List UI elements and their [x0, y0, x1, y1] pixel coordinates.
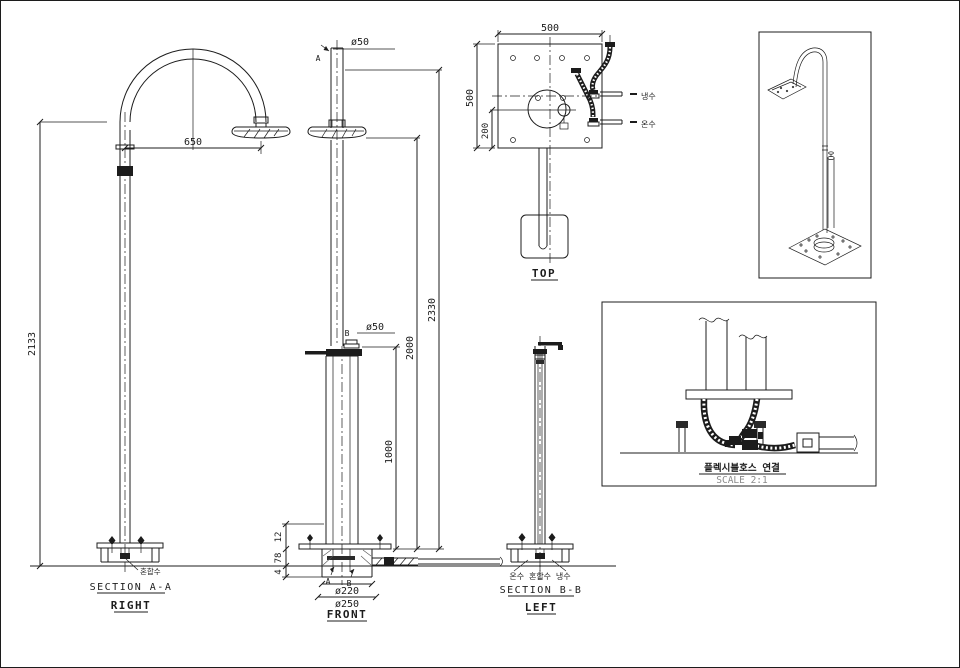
- detail-scale-label: SCALE 2:1: [716, 475, 768, 486]
- marker-a-top: A: [316, 54, 321, 63]
- right-view-label: RIGHT: [111, 599, 152, 612]
- section-a-label: SECTION A-A: [90, 582, 173, 593]
- marker-b-mid: B: [345, 329, 350, 338]
- svg-text:12: 12: [274, 532, 284, 543]
- section-b-label: SECTION B-B: [500, 585, 583, 596]
- detail-title: 플렉시블호스 연결: [704, 462, 780, 474]
- front-view-label: FRONT: [327, 608, 368, 621]
- svg-text:500: 500: [465, 89, 476, 107]
- drawing-sheet: 650 2133 혼합수 SECTION A-A RIGHT ø50: [0, 0, 960, 668]
- cad-canvas: 650 2133 혼합수 SECTION A-A RIGHT ø50: [0, 0, 960, 668]
- svg-text:2330: 2330: [427, 298, 438, 322]
- left-view-label: LEFT: [525, 601, 558, 614]
- dim-pipe-dia-mid: ø50: [366, 322, 384, 333]
- callout-hot-water: 온수: [641, 120, 656, 129]
- svg-text:500: 500: [541, 23, 559, 34]
- svg-text:650: 650: [184, 137, 202, 148]
- svg-text:200: 200: [481, 123, 491, 139]
- conduit-fitting: [384, 557, 394, 566]
- top-view-label: TOP: [532, 267, 556, 280]
- callout-cold-water: 냉수: [641, 91, 656, 101]
- marker-a-bottom: A: [326, 577, 331, 586]
- callout-pipes: 온수 혼합수 냉수: [509, 571, 570, 581]
- svg-text:4: 4: [274, 569, 284, 574]
- dim-pipe-dia-top: ø50: [351, 37, 369, 48]
- svg-text:1000: 1000: [384, 440, 395, 464]
- valve-body: [326, 349, 362, 356]
- svg-text:2133: 2133: [27, 332, 38, 356]
- svg-text:ø220: ø220: [335, 586, 359, 597]
- callout-mixed-water: 혼합수: [140, 566, 161, 576]
- svg-text:2000: 2000: [405, 336, 416, 360]
- svg-text:78: 78: [274, 553, 284, 564]
- valve-lever: [305, 351, 326, 355]
